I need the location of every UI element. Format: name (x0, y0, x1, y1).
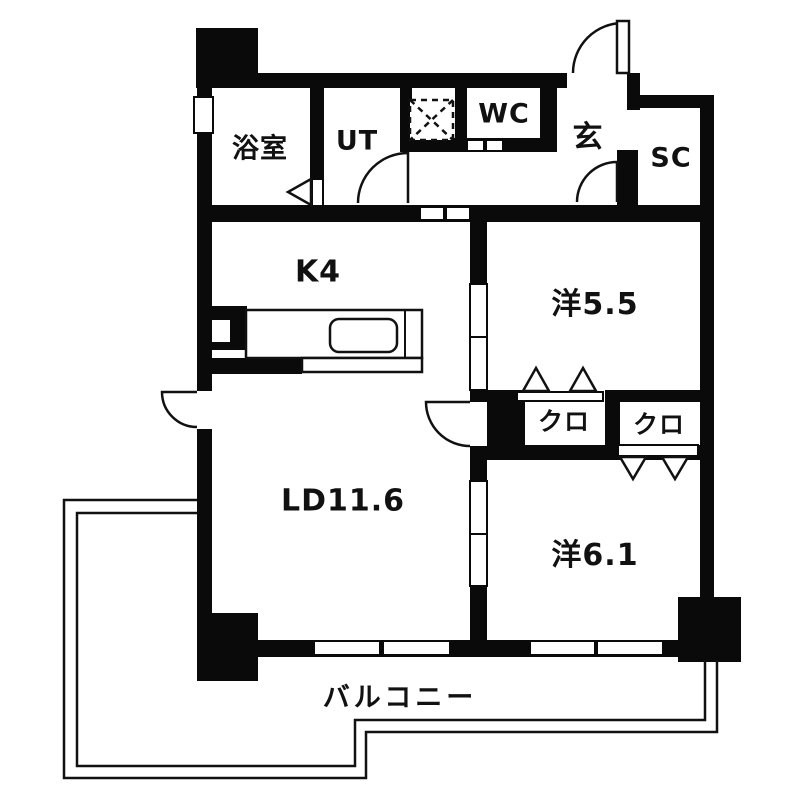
room-label-entrance: 玄 (573, 112, 604, 156)
room-label-living-dining: LD11.6 (281, 484, 405, 519)
ld-left-door-opening (195, 391, 214, 429)
ld-window-2 (382, 640, 451, 656)
wc-door-panel-2 (485, 139, 504, 152)
sliding-door-yo55-2 (469, 336, 488, 391)
hall-sliding-door-2 (445, 206, 471, 221)
yo61-window-2 (596, 640, 664, 656)
sliding-door-yo61-1 (469, 480, 488, 535)
ut-door-arc (358, 153, 408, 203)
bath-door-panel (311, 178, 324, 207)
genkan-door-arc (577, 162, 617, 202)
room-label-bath: 浴室 (232, 127, 288, 166)
sliding-door-yo61-2 (469, 533, 488, 587)
room-label-kitchen: K4 (295, 255, 341, 290)
closet2-door-panel (617, 444, 699, 457)
room-label-utility: UT (336, 126, 378, 157)
pillar-bottom-right (678, 597, 741, 662)
room-label-shoe-closet: SC (650, 143, 691, 174)
room-label-toilet: WC (478, 99, 530, 130)
sliding-door-yo55-1 (469, 283, 488, 338)
ld-central-door-opening (470, 402, 487, 446)
room-label-western-room-1: 洋5.5 (551, 279, 638, 323)
wall-genkan-sc-stub (617, 150, 638, 207)
bath-door-triangle (288, 179, 311, 205)
wall-right (700, 95, 714, 597)
kitchen-wall-stub-right (230, 318, 247, 344)
ld-central-door-arc (426, 402, 470, 446)
closet2-triangle-1 (620, 457, 646, 479)
kitchen-wall-stub-bottom (212, 342, 247, 350)
hall-sliding-door-1 (419, 206, 445, 221)
bath-window (193, 96, 214, 134)
closet2-triangle-2 (662, 457, 688, 479)
yo61-window-1 (529, 640, 596, 656)
pillar-bottom-left (197, 613, 258, 681)
floorplan-canvas: 浴室 UT WC 玄 SC K4 洋5.5 クロ クロ LD11.6 洋6.1 … (0, 0, 800, 800)
wc-door-panel-1 (466, 139, 485, 152)
wall-kitchen-bottom (197, 358, 302, 374)
room-label-closet-1: クロ (538, 402, 590, 438)
entrance-door-leaf (617, 21, 629, 73)
entrance-door-arc (573, 23, 623, 73)
closet1-door-panel (516, 391, 604, 402)
closet1-triangle-2 (570, 368, 596, 391)
closet1-triangle-1 (523, 368, 549, 391)
wall-closet-top (605, 390, 714, 402)
room-label-closet-2: クロ (633, 405, 685, 441)
ld-west-door-arc (162, 392, 197, 427)
room-label-balcony: バルコニー (323, 676, 477, 715)
wall-closet-divider (605, 390, 620, 448)
room-label-western-room-2: 洋6.1 (551, 530, 638, 574)
pillar-top-left (196, 28, 258, 88)
appliance-dashed-box (410, 100, 453, 140)
ld-window-1 (313, 640, 381, 656)
